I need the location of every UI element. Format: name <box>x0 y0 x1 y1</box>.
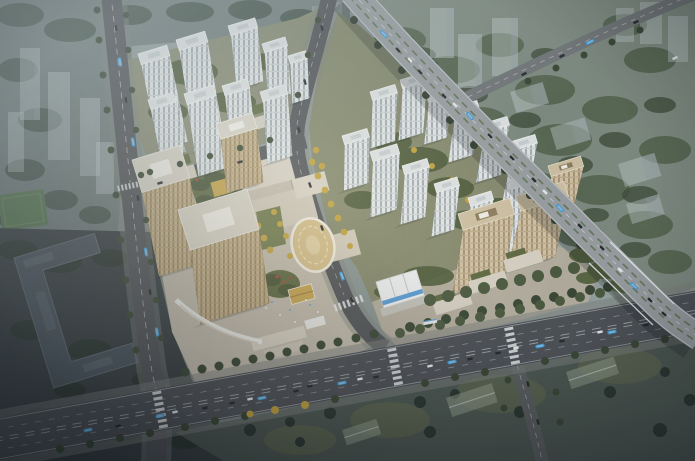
aerial-rendering <box>0 0 695 461</box>
rendering-canvas: Dusk aerial rendering of a mixed-use dev… <box>0 0 695 461</box>
vignette-overlay <box>0 0 695 461</box>
